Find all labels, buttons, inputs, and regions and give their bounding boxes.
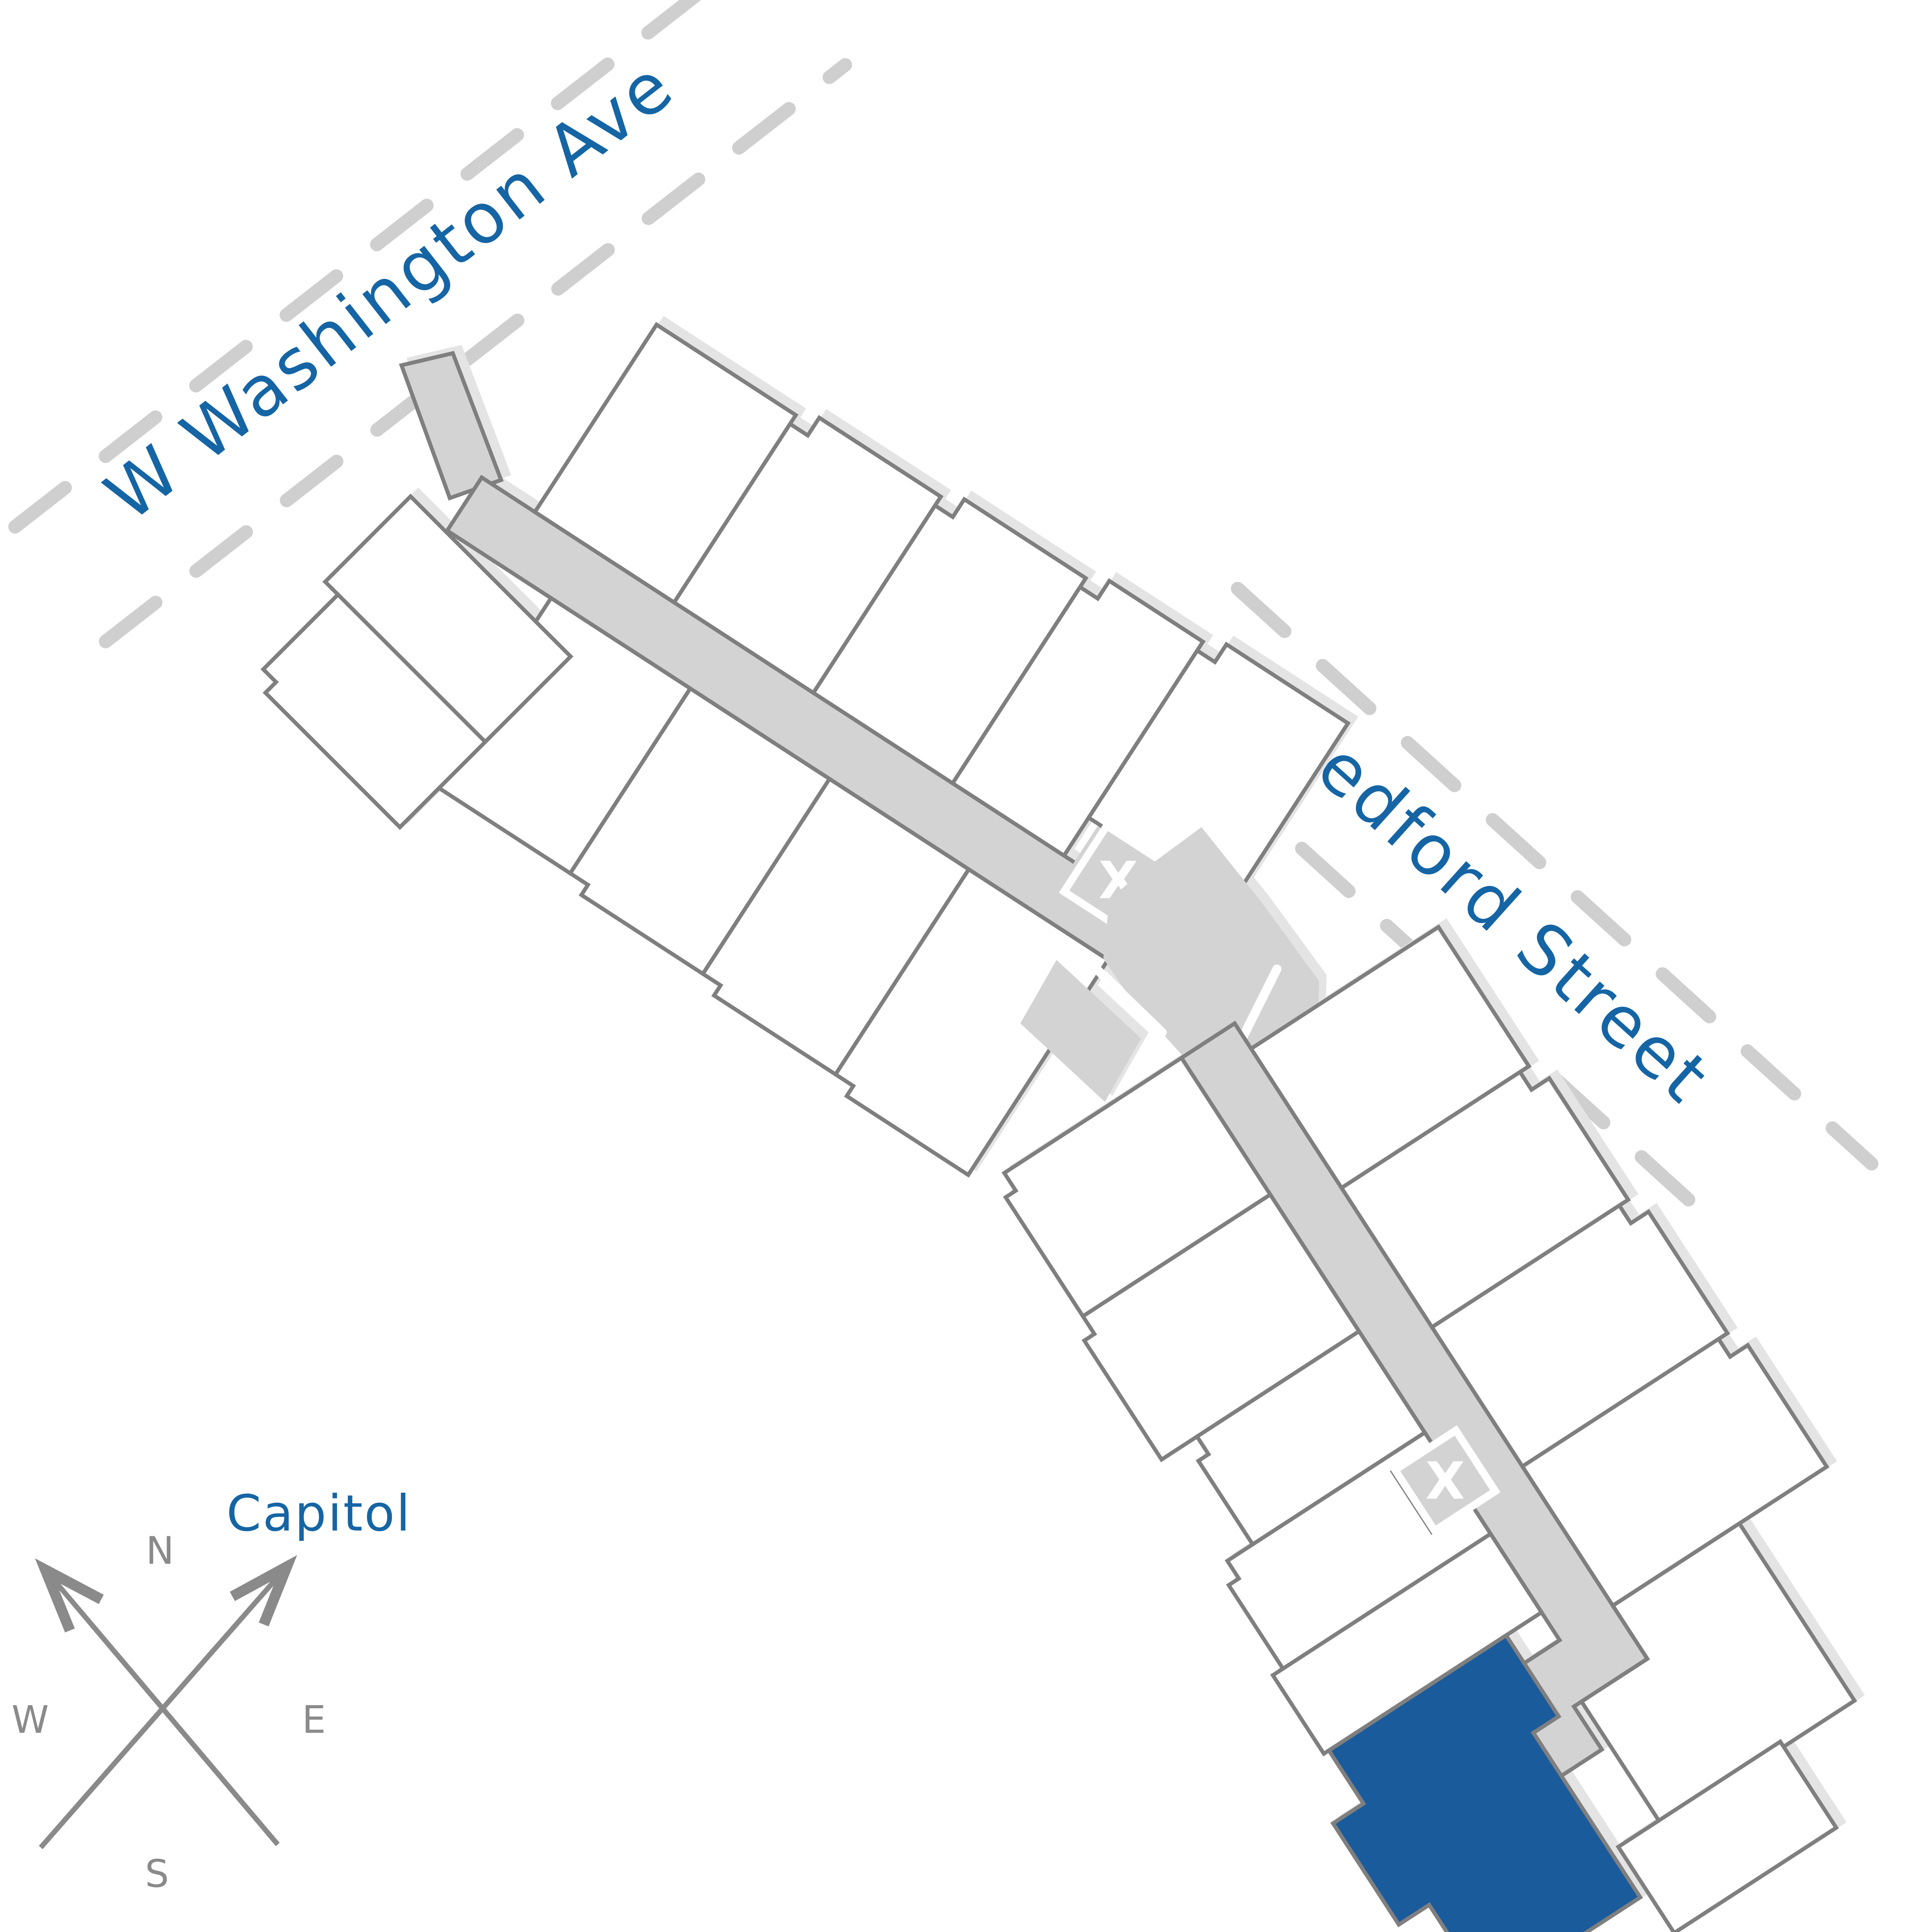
x-marker-label: X xyxy=(1425,1452,1465,1511)
walkway-entry xyxy=(401,353,501,498)
capitol-label: Capitol xyxy=(226,1485,412,1543)
compass-rose: N E W S Capitol xyxy=(12,1485,412,1896)
site-plan-page: W Washington Ave S Bedford Street xyxy=(0,0,1932,1932)
site-plan-map: W Washington Ave S Bedford Street xyxy=(0,0,1932,1932)
compass-e: E xyxy=(302,1698,326,1742)
compass-w: W xyxy=(12,1698,49,1742)
compass-n: N xyxy=(146,1529,174,1573)
compass-s: S xyxy=(145,1852,169,1896)
